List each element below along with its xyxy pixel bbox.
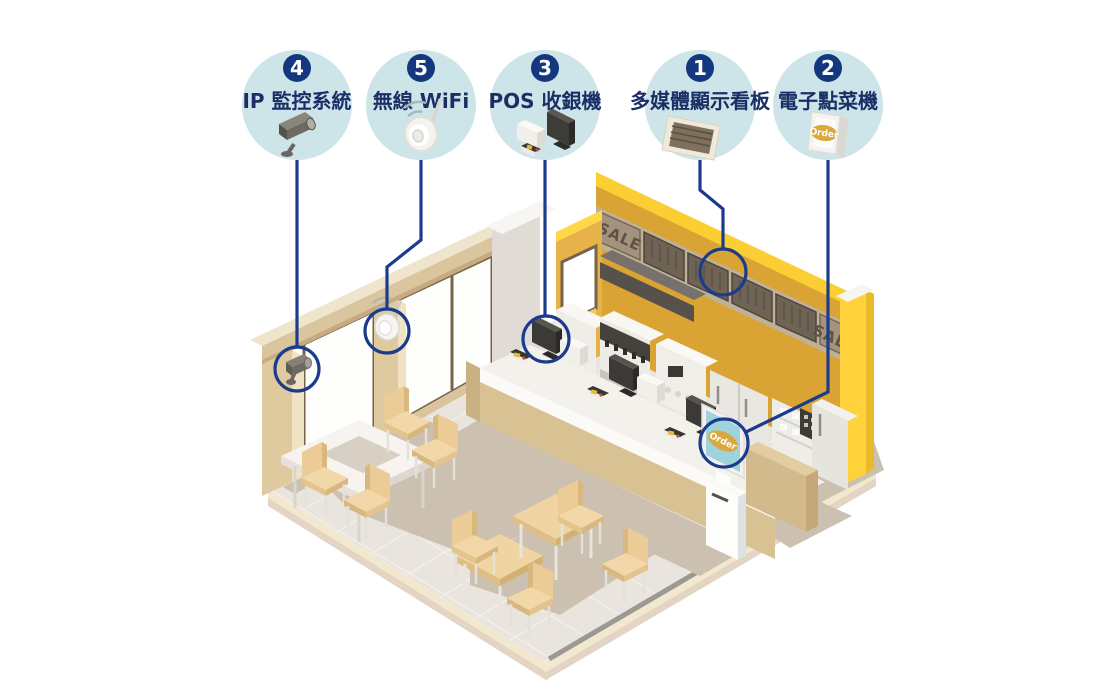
callout-label: 多媒體顯示看板 (630, 89, 771, 113)
callout-4: 4 IP 監控系統 (242, 50, 352, 160)
callout-number: 1 (693, 56, 707, 80)
callout-number: 5 (414, 56, 428, 80)
callout-label: POS 收銀機 (488, 89, 601, 113)
callout-2: 2 電子點菜機 Order (773, 50, 883, 160)
callout-label: 電子點菜機 (778, 89, 878, 113)
callout-1: 1 多媒體顯示看板 (630, 50, 771, 160)
order-kiosk-icon: Order (808, 112, 848, 158)
callout-label: IP 監控系統 (242, 89, 351, 113)
isometric-restaurant-scene: SALE SALE (0, 0, 1119, 696)
callout-3: 3 POS 收銀機 (488, 50, 601, 160)
callout-number: 4 (290, 56, 304, 80)
callout-5: 5 無線 WiFi (366, 50, 476, 160)
callout-number: 3 (538, 56, 552, 80)
callout-number: 2 (821, 56, 835, 80)
restaurant-tech-infographic: SALE SALE (0, 0, 1119, 696)
